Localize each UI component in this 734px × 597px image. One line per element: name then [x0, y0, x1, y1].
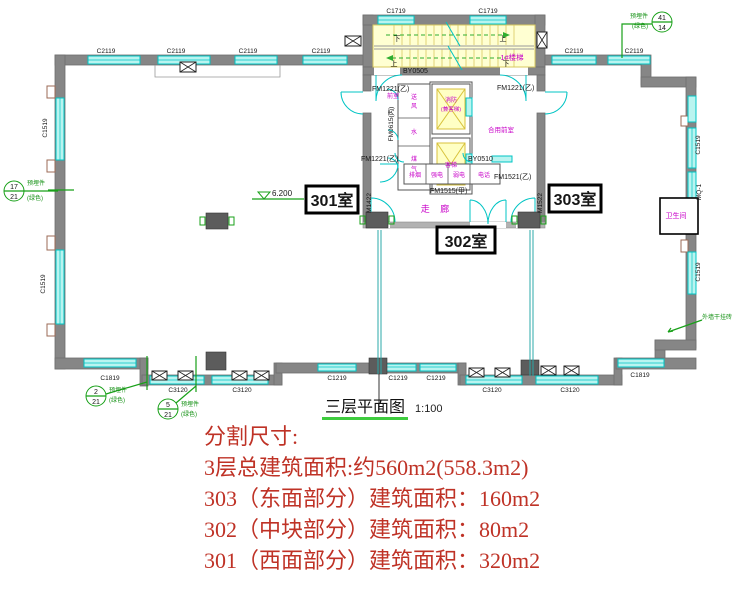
stair-down-label: 下 — [503, 60, 510, 68]
passenger-elevator-label: 客梯 — [445, 161, 457, 169]
vent-symbol-icon — [180, 62, 196, 72]
embed-note: (绿色) — [632, 22, 648, 30]
window-label: C1719 — [478, 8, 498, 15]
notes-line: 302（中块部分）建筑面积：80m2 — [204, 514, 540, 545]
window-label: C1219 — [327, 375, 347, 382]
window-label: C2119 — [97, 48, 116, 55]
window-label: C2119 — [239, 48, 258, 55]
door-label: FM1521(乙) — [494, 173, 531, 181]
drawing-title: 三层平面图 — [322, 399, 408, 420]
vent-symbol-icon — [232, 371, 247, 380]
door-label: FM1221(乙) — [372, 85, 409, 93]
window-label: C1819 — [100, 375, 120, 382]
window-label: C3120 — [168, 387, 188, 394]
room-301-label: 301室 — [311, 191, 354, 210]
window-label: C3120 — [232, 387, 252, 394]
air-supply-shaft-label: 风 — [411, 103, 417, 110]
window-label: C1519 — [40, 274, 47, 294]
bubble-bottom: 21 — [92, 399, 100, 406]
notes-line: 301（西面部分）建筑面积：320m2 — [204, 545, 540, 576]
embed-note: (绿色) — [181, 410, 197, 418]
embed-note: 预埋件 — [181, 400, 199, 408]
bubble-bottom: 21 — [164, 412, 172, 419]
fire-elevator-label-2: (兼客梯) — [441, 105, 461, 113]
bathroom-callout: 卫生间 — [660, 198, 698, 234]
level-value: 6.200 — [272, 189, 293, 198]
door-label: FM0615(丙) — [387, 107, 395, 142]
phone-shaft-label: 电话 — [478, 171, 490, 179]
embed-note: (绿色) — [109, 396, 125, 404]
smoke-shaft-label: 排烟 — [409, 171, 421, 179]
door-label: BY0505 — [403, 68, 428, 75]
vent-symbol-icon — [345, 36, 361, 46]
drawing-scale: 1:100 — [415, 403, 443, 415]
window-label: C3120 — [482, 387, 502, 394]
window-label: C2119 — [625, 48, 644, 55]
vent-symbol-icon — [495, 368, 510, 377]
power-shaft-label: 强电 — [431, 171, 443, 179]
window-label: C1519 — [42, 118, 49, 138]
curtain-wall-label: MQ-1 — [696, 183, 703, 200]
vent-symbol-icon — [178, 371, 193, 380]
floor-plan-page: 卫生间 C2119 C2119 C2119 C2119 C2119 C2119 … — [0, 0, 734, 597]
vent-symbol-icon — [541, 366, 556, 375]
window-label: C1719 — [386, 8, 406, 15]
window-label: C1519 — [695, 135, 702, 155]
floor-plan-drawing: 卫生间 C2119 C2119 C2119 C2119 C2119 C2119 … — [0, 0, 734, 420]
embed-note: (绿色) — [27, 194, 43, 202]
door-label: M1422 — [366, 193, 373, 213]
door-label: FM1221(乙) — [497, 84, 534, 92]
embed-note: 预埋件 — [109, 386, 127, 394]
notes-heading: 分割尺寸: — [204, 421, 540, 452]
stair-down-label: 下 — [394, 35, 401, 43]
gas-shaft-label: 气 — [411, 165, 417, 173]
window-label: C1819 — [630, 372, 650, 379]
room-302-label: 302室 — [445, 232, 488, 251]
area-notes: 分割尺寸: 3层总建筑面积:约560m2(558.3m2) 303（东面部分）建… — [204, 421, 540, 576]
ledge-outline — [155, 65, 280, 77]
notes-line: 303（东面部分）建筑面积：160m2 — [204, 483, 540, 514]
shared-front-room-label: 合用前室 — [488, 125, 515, 134]
window-label: C1219 — [426, 375, 446, 382]
level-marker: 6.200 — [252, 189, 304, 199]
vent-symbol-icon — [564, 366, 579, 375]
room-number-callouts: 301室 303室 302室 — [306, 185, 601, 253]
bubble-top: 2 — [94, 389, 98, 396]
window-label: C2119 — [167, 48, 186, 55]
bubble-bottom: 21 — [10, 194, 18, 201]
fire-elevator-label: 消防 — [445, 96, 457, 104]
bubble-top: 5 — [166, 402, 170, 409]
bathroom-label: 卫生间 — [666, 211, 687, 220]
drawing-title-block: 三层平面图1:100 — [322, 393, 443, 417]
window-label: C1219 — [388, 375, 408, 382]
door-label: FM1515(甲) — [430, 187, 467, 195]
stair-up-label: 上 — [391, 59, 398, 68]
window-label: C3120 — [560, 387, 580, 394]
window-label: C1519 — [695, 262, 702, 282]
facade-note: 外墙干挂砖 — [668, 313, 732, 332]
door-label: FM1221(乙) — [361, 155, 398, 163]
door-label: BY0510 — [468, 156, 493, 163]
vent-symbol-icon — [254, 371, 269, 380]
gas-shaft-label: 煤 — [411, 155, 417, 163]
stair-up-label: 上 — [500, 34, 507, 43]
embed-note: 预埋件 — [630, 12, 648, 20]
air-supply-shaft-label: 送 — [411, 93, 417, 101]
telecom-shaft-label: 弱电 — [453, 171, 465, 179]
room-303-label: 303室 — [554, 190, 597, 209]
bubble-bottom: 14 — [658, 25, 666, 32]
vent-symbol-icon — [469, 368, 484, 377]
facade-note-text: 外墙干挂砖 — [702, 313, 732, 321]
water-shaft-label: 水 — [411, 128, 417, 136]
corridor-label: 走 廊 — [421, 203, 454, 214]
door-label: M1522 — [537, 193, 544, 213]
notes-line: 3层总建筑面积:约560m2(558.3m2) — [204, 452, 540, 483]
window-label: C2119 — [565, 48, 584, 55]
window-label: C2119 — [312, 48, 331, 55]
vent-symbol-icon — [537, 32, 547, 48]
embed-note: 预埋件 — [27, 179, 45, 187]
bubble-top: 41 — [658, 15, 666, 22]
vent-symbol-icon — [152, 371, 167, 380]
front-room-label: 前室 — [387, 92, 399, 100]
bubble-top: 17 — [10, 184, 18, 191]
